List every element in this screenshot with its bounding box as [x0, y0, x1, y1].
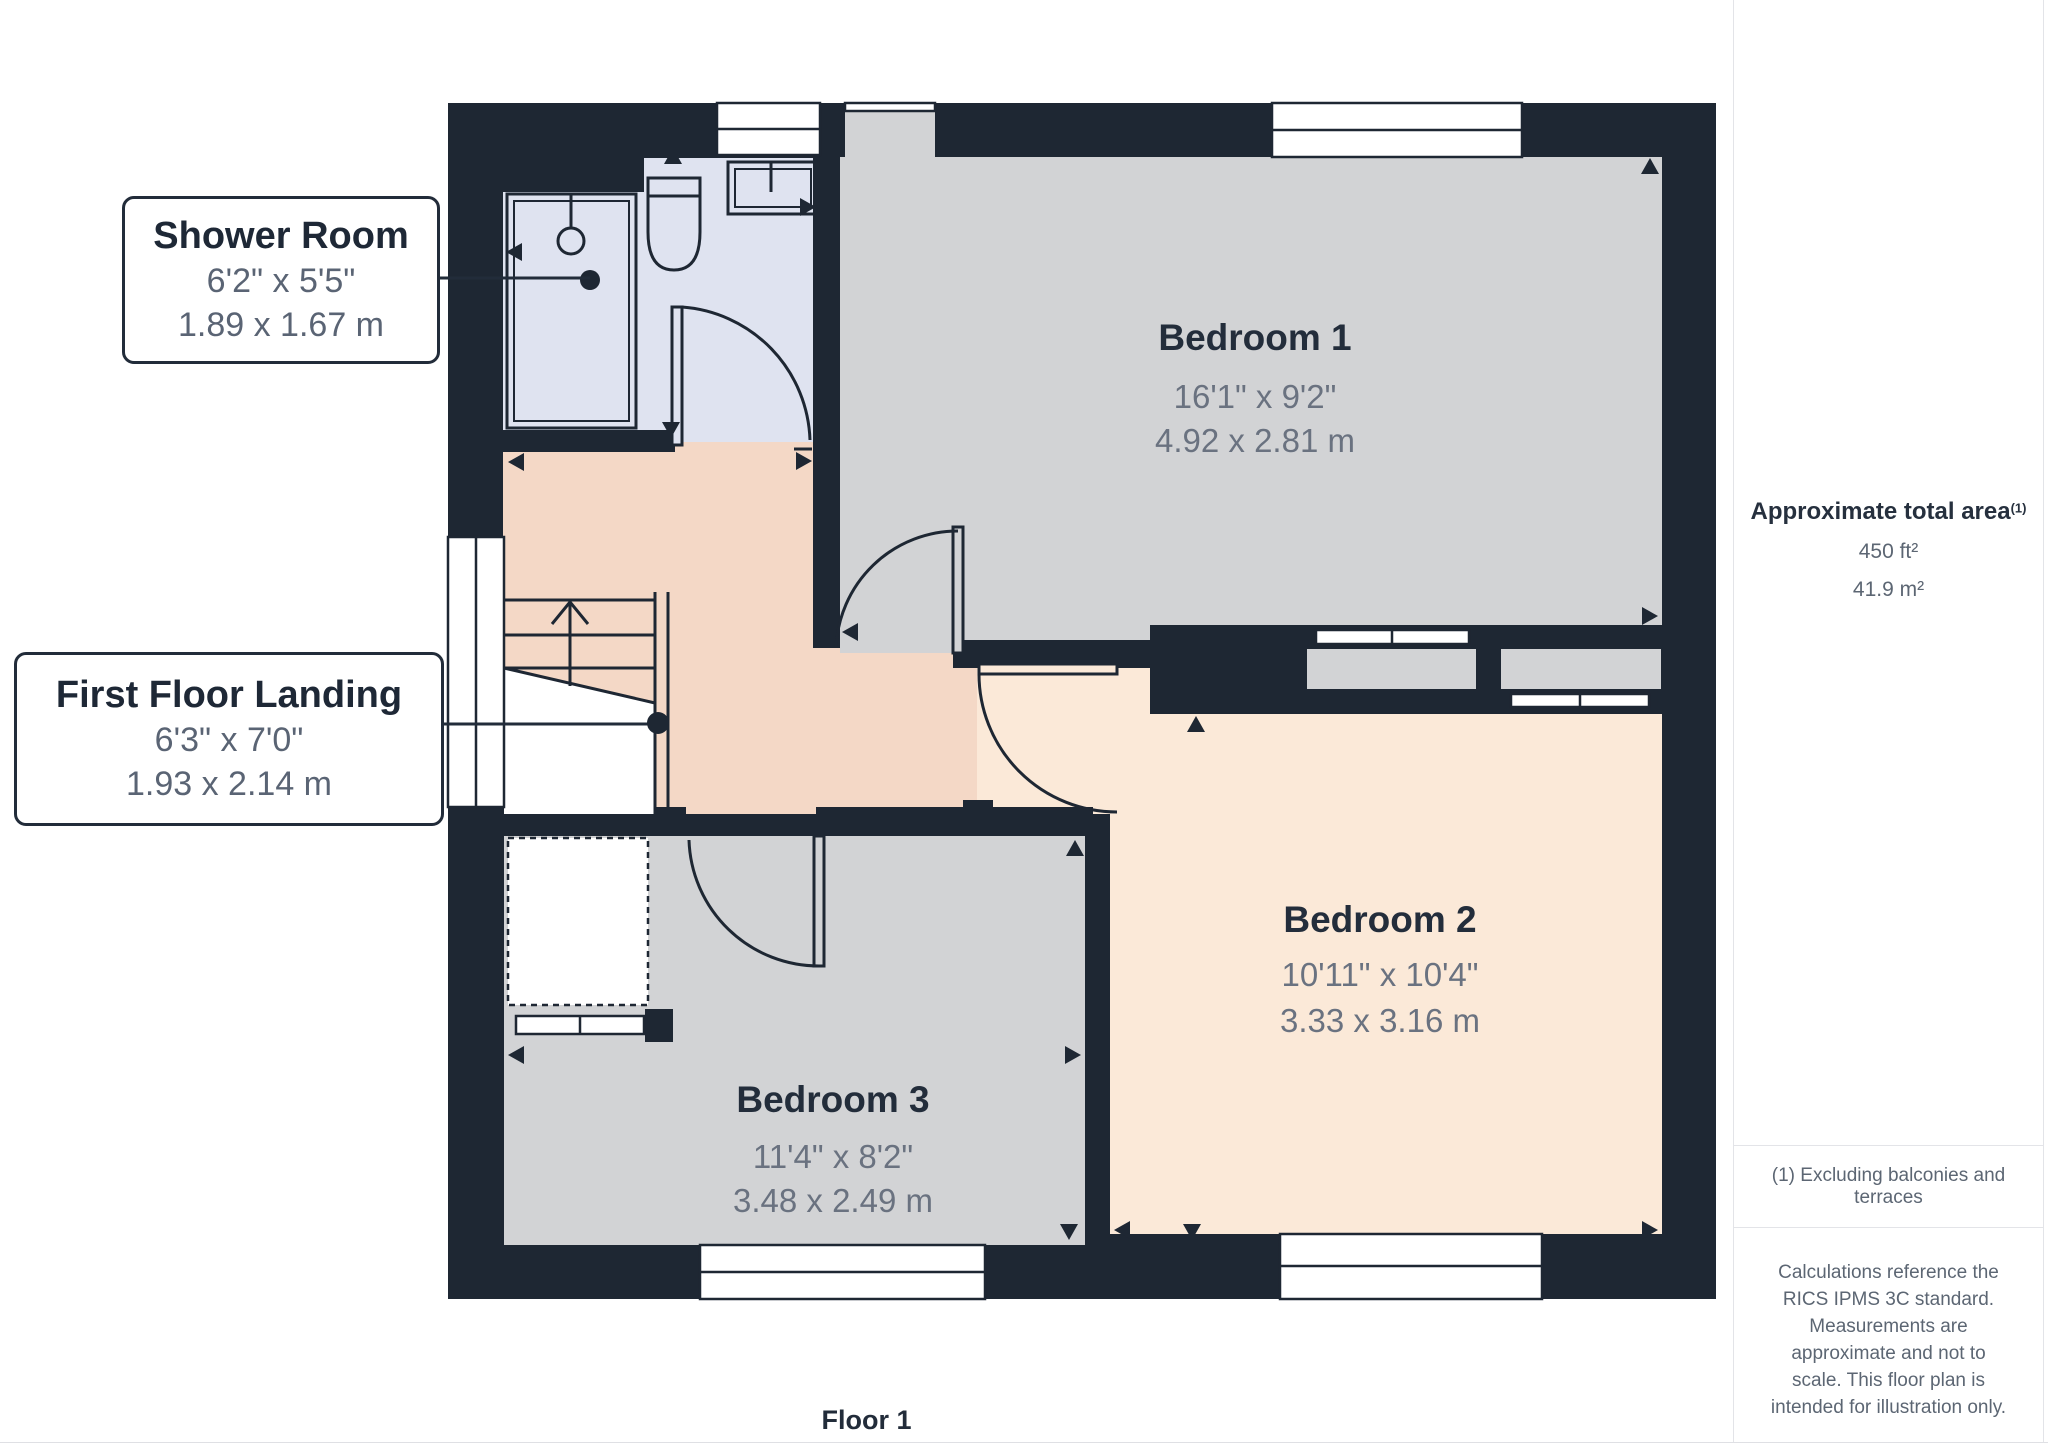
door-leaf-bedroom3 [814, 836, 824, 966]
info-sidebar: Approximate total area(1) 450 ft² 41.9 m… [1733, 0, 2044, 1442]
wardrobe-bedroom3 [508, 838, 648, 1005]
callout-landing-title: First Floor Landing [56, 672, 402, 720]
callout-shower-title: Shower Room [153, 213, 408, 261]
callout-first-floor-landing: First Floor Landing 6'3" x 7'0" 1.93 x 2… [14, 652, 444, 826]
total-area-imperial: 450 ft² [1734, 540, 2043, 564]
bedroom1-dims-imperial: 16'1" x 9'2" [1174, 378, 1337, 415]
total-area-heading: Approximate total area [1751, 498, 2011, 525]
wall-shower-landing [503, 430, 675, 452]
shower-callout-anchor-dot [580, 270, 600, 290]
chimney-flue-band [845, 103, 935, 111]
bedroom3-name: Bedroom 3 [736, 1079, 929, 1120]
footnote-section: (1) Excluding balconies and terraces [1734, 1145, 2043, 1228]
floorplan-page: Bedroom 1 16'1" x 9'2" 4.92 x 2.81 m Bed… [0, 0, 2048, 1446]
callout-shower-imperial: 6'2" x 5'5" [207, 260, 356, 304]
landing-callout-anchor-dot [647, 712, 669, 734]
wall-stub-wardrobe [645, 1009, 673, 1042]
wall-bedroom3-bedroom2 [1085, 814, 1110, 1234]
door-leaf-bedroom1 [953, 527, 963, 653]
niche-bedroom1 [1307, 649, 1476, 689]
chimney-breast [845, 110, 935, 157]
callout-shower-metric: 1.89 x 1.67 m [178, 304, 384, 348]
total-area-block: Approximate total area(1) 450 ft² 41.9 m… [1734, 498, 2043, 602]
bedroom3-dims-imperial: 11'4" x 8'2" [753, 1138, 913, 1175]
door-leaf-bedroom2 [979, 664, 1117, 674]
wall-landing-bedroom1 [813, 157, 840, 648]
wall-bedroom3-top-right [816, 807, 1093, 836]
callout-landing-metric: 1.93 x 2.14 m [126, 763, 332, 807]
bedroom3-dims-metric: 3.48 x 2.49 m [733, 1182, 933, 1219]
disclaimer-section: Calculations reference the RICS IPMS 3C … [1734, 1228, 2043, 1446]
floor-label: Floor 1 [0, 1405, 1733, 1436]
bedroom2-dims-imperial: 10'11" x 10'4" [1282, 956, 1479, 993]
bedroom1-name: Bedroom 1 [1158, 317, 1351, 358]
page-bottom-divider [0, 1442, 2048, 1443]
bedroom2-name: Bedroom 2 [1283, 899, 1476, 940]
wall-notch-corridor [963, 800, 993, 814]
callout-landing-imperial: 6'3" x 7'0" [155, 719, 304, 763]
callout-shower-room: Shower Room 6'2" x 5'5" 1.89 x 1.67 m [122, 196, 440, 364]
disclaimer-text: Calculations reference the RICS IPMS 3C … [1734, 1228, 2043, 1422]
niche-bedroom2 [1501, 649, 1661, 689]
footnote-text: (1) Excluding balconies and terraces [1734, 1165, 2043, 1209]
total-area-footnote-ref: (1) [2011, 501, 2027, 516]
bedroom1-dims-metric: 4.92 x 2.81 m [1155, 422, 1355, 459]
total-area-metric: 41.9 m² [1734, 578, 2043, 602]
bedroom2-dims-metric: 3.33 x 3.16 m [1280, 1002, 1480, 1039]
